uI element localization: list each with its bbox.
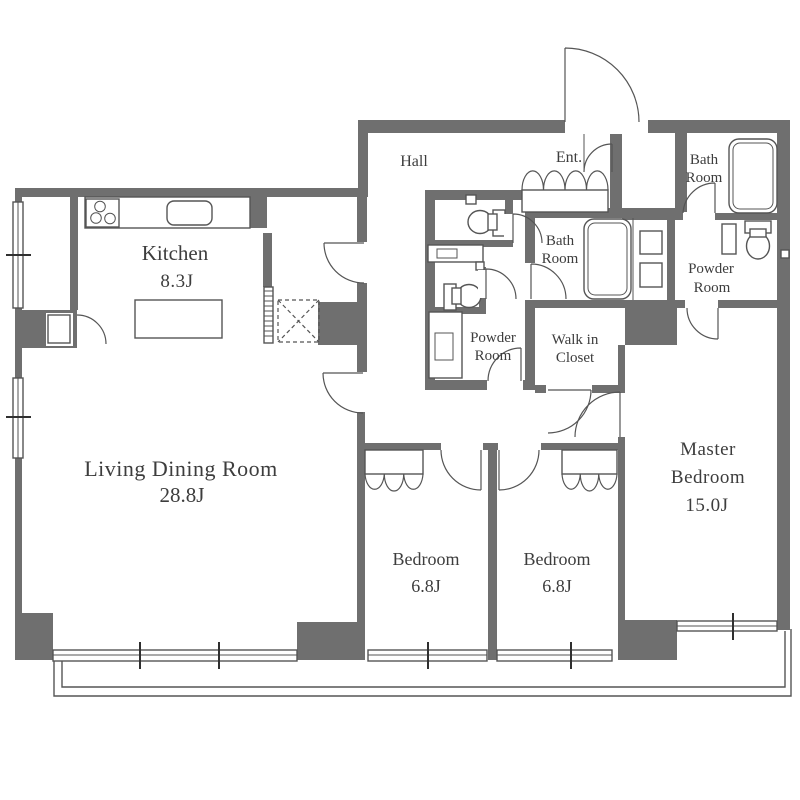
- accordion-door-icon: [264, 287, 273, 343]
- room-bathroom-inner: Bath Room: [542, 233, 579, 267]
- kitchen-fixtures: [85, 197, 319, 343]
- room-area: 15.0J: [685, 495, 728, 516]
- room-label: Room: [686, 170, 723, 186]
- refrigerator-space-icon: [278, 300, 319, 342]
- toilet-powder-icon: [745, 221, 771, 259]
- room-label: Bath: [690, 152, 719, 168]
- entrance-inner-door-icon: [584, 144, 612, 172]
- room-powder-center: Powder Room: [470, 330, 516, 364]
- room-label: Master: [680, 439, 736, 460]
- balcony: [54, 629, 791, 696]
- window-bedroom-right-icon: [497, 642, 612, 669]
- door-wc-lower-icon: [478, 269, 516, 299]
- room-label: Bedroom: [671, 467, 745, 488]
- door-wc-upper-icon: [504, 214, 542, 243]
- room-label: Powder: [688, 261, 734, 277]
- window-living-left-icon: [6, 378, 31, 458]
- washbasin-powder-right-icon: [722, 224, 736, 254]
- gas-stove-icon: [86, 199, 119, 227]
- room-label: Room: [694, 280, 731, 296]
- door-bathroom-upper-icon: [683, 183, 715, 221]
- room-label: Closet: [556, 350, 595, 366]
- room-bedroom-right: Bedroom 6.8J: [524, 549, 591, 596]
- door-master-icon: [575, 392, 620, 437]
- room-label: Walk in: [552, 332, 599, 348]
- toilet-upper-icon: [468, 210, 505, 236]
- door-bathroom-inner-icon: [524, 263, 566, 300]
- room-master-bedroom: Master Bedroom 15.0J: [671, 439, 745, 516]
- room-label: Bedroom: [524, 549, 591, 569]
- room-kitchen: Kitchen 8.3J: [142, 241, 209, 292]
- window-master-icon: [677, 613, 777, 640]
- bathtub-upper-icon: [729, 139, 777, 213]
- closet-bedroom-left-icon: [365, 450, 423, 491]
- room-label: Hall: [400, 153, 428, 170]
- washer-dryer-icon: [633, 218, 662, 300]
- room-bathroom-upper: Bath Room: [686, 152, 723, 186]
- washbasin-hall-icon: [428, 245, 483, 262]
- door-bedroom-right-icon: [499, 450, 539, 490]
- window-bedroom-left-icon: [368, 642, 487, 669]
- window-living-bottom-icon: [53, 642, 297, 669]
- window-pantry-icon: [6, 202, 31, 308]
- room-label: Room: [542, 251, 579, 267]
- room-area: 6.8J: [542, 576, 572, 596]
- room-area: 28.8J: [160, 483, 205, 507]
- entrance-door-icon: [565, 48, 648, 134]
- floor-plan-canvas: Kitchen 8.3J Living Dining Room 28.8J Ha…: [0, 0, 800, 800]
- washbasin-powder-center-icon: [429, 312, 462, 378]
- wall-vent-icon: [476, 262, 484, 270]
- door-powder-master-icon: [687, 308, 718, 339]
- wall-vent-icon: [781, 250, 789, 258]
- closet-bedroom-right-icon: [562, 450, 617, 491]
- toilet-lower-icon: [444, 284, 481, 310]
- room-label: Living Dining Room: [84, 456, 278, 481]
- room-label: Bath: [546, 233, 575, 249]
- floor-plan: Kitchen 8.3J Living Dining Room 28.8J Ha…: [0, 0, 800, 800]
- room-label: Powder: [470, 330, 516, 346]
- room-walk-in-closet: Walk in Closet: [552, 332, 599, 366]
- room-area: 8.3J: [160, 271, 193, 292]
- room-label: Ent.: [556, 149, 582, 166]
- door-hall-kitchen-icon: [324, 242, 368, 283]
- room-bedroom-left: Bedroom 6.8J: [393, 549, 460, 596]
- door-hall-living-icon: [323, 372, 368, 413]
- bathtub-inner-icon: [584, 219, 631, 299]
- room-powder-right: Powder Room: [688, 261, 734, 296]
- room-label: Room: [475, 348, 512, 364]
- room-area: 6.8J: [411, 576, 441, 596]
- wall-vent-icon: [466, 195, 476, 204]
- door-bedroom-left-icon: [441, 450, 481, 490]
- room-label: Kitchen: [142, 241, 209, 265]
- room-hall: Hall: [400, 153, 428, 170]
- shoe-cabinet-icon: [522, 171, 608, 212]
- kitchen-sink-icon: [167, 201, 212, 225]
- kitchen-island-icon: [135, 300, 222, 338]
- room-living-dining: Living Dining Room 28.8J: [84, 456, 278, 507]
- room-label: Bedroom: [393, 549, 460, 569]
- room-entrance: Ent.: [556, 149, 582, 166]
- door-walk-in-closet-icon: [548, 390, 591, 433]
